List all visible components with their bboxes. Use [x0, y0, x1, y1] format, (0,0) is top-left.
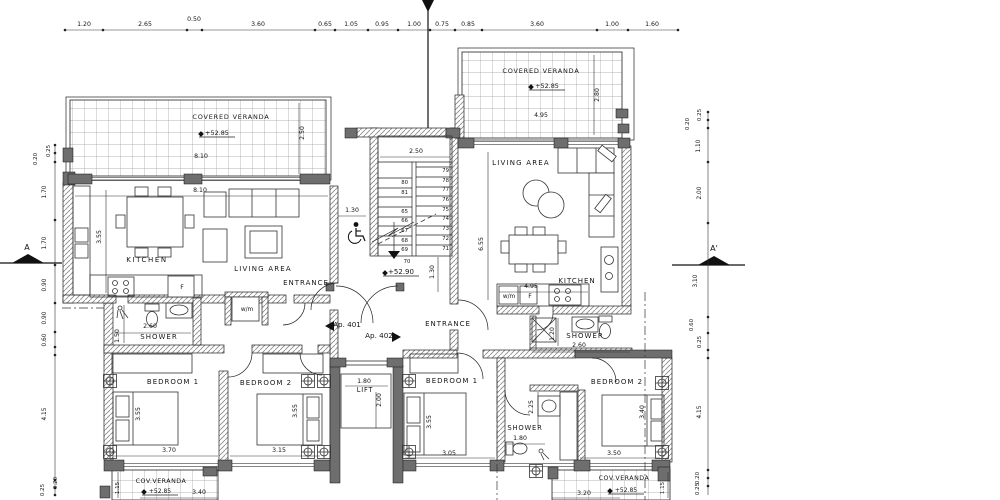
- dim-dot: [707, 127, 710, 130]
- furniture-right-apartment: [497, 145, 618, 460]
- stove: [108, 277, 134, 296]
- column-symbol: [318, 446, 331, 459]
- dim-dot: [454, 29, 457, 32]
- label-bedroom2-left: BEDROOM 2: [240, 379, 292, 387]
- dim-dot: [201, 29, 204, 32]
- stair-numbers: 80816566676869797877767574737271: [401, 168, 449, 253]
- dim-dot: [596, 29, 599, 32]
- wardrobe: [112, 354, 192, 373]
- dim-dot: [54, 264, 57, 267]
- dimension-label: 3.55: [135, 407, 142, 421]
- dimension-label: 2.50: [299, 126, 306, 140]
- door-arc-lobby-right: [361, 286, 398, 323]
- stair-step-number: 68: [401, 238, 408, 244]
- wheelchair-icon: [348, 222, 365, 243]
- label-living-area-right: LIVING AREA: [492, 159, 550, 167]
- door-arc-lobby-left: [336, 286, 373, 323]
- label-kitchen-left: KITCHEN: [126, 256, 168, 264]
- label-covered-veranda-right: COVERED VERANDA: [502, 67, 579, 75]
- label-washing-machine-right: w/m: [503, 294, 516, 300]
- stair-step-number: 81: [401, 190, 408, 196]
- dim-dot: [314, 29, 317, 32]
- dimension-label: 3.40: [192, 489, 206, 496]
- dimension-label: 3.70: [162, 447, 176, 454]
- label-covered-veranda-left: COVERED VERANDA: [192, 113, 269, 121]
- label-fridge-right: F: [528, 293, 532, 300]
- dimension-label: 1.15: [115, 481, 121, 494]
- dim-dot: [707, 316, 710, 319]
- stair-step-number: 66: [401, 218, 408, 224]
- dim-dot: [367, 29, 370, 32]
- dim-dot: [64, 29, 67, 32]
- sink: [166, 303, 192, 318]
- dimension-label: 0.90: [42, 278, 48, 291]
- dimension-label: 4.15: [697, 405, 703, 418]
- dimension-label: 1.70: [42, 236, 48, 249]
- dim-dot: [54, 346, 57, 349]
- level-mark: +52.85: [205, 129, 229, 137]
- dimension-label: 3.60: [530, 21, 544, 28]
- label-fridge-left: F: [180, 284, 184, 291]
- dim-dot: [707, 119, 710, 122]
- dimension-label: 1.05: [344, 21, 358, 28]
- dimension-label: 0.60: [42, 333, 48, 346]
- dimension-label: 0.25: [46, 144, 52, 157]
- label-bedroom2-right: BEDROOM 2: [591, 378, 643, 386]
- label-shower-right-1: SHOWER: [566, 332, 603, 340]
- label-living-area-left: LIVING AREA: [234, 265, 292, 273]
- dimension-label: 0.25: [697, 335, 703, 348]
- dim-dot: [707, 161, 710, 164]
- dim-dot: [54, 161, 57, 164]
- section-arrow-a: [12, 254, 44, 263]
- dimension-label: 3.15: [272, 447, 286, 454]
- stair-stringer: [412, 162, 416, 256]
- dimension-label: 0.95: [375, 21, 389, 28]
- window-south-left: [104, 464, 330, 467]
- stair-step-number: 72: [442, 236, 449, 242]
- label-entrance-left: ENTRANCE: [283, 279, 329, 287]
- dim-dot: [707, 357, 710, 360]
- section-marker-a-prime: A': [710, 244, 718, 253]
- stair-step-number: 80: [401, 180, 408, 186]
- dimension-label: 3.55: [426, 415, 433, 429]
- label-cov-veranda-right: COV.VERANDA: [599, 475, 650, 482]
- sink: [538, 396, 560, 416]
- dimension-label: 1.50: [114, 329, 121, 343]
- dim-dot: [707, 349, 710, 352]
- dim-dot: [54, 302, 57, 305]
- section-arrow-a-prime: [698, 256, 730, 265]
- dimension-label: 0.25: [697, 108, 703, 121]
- dim-dot: [481, 29, 484, 32]
- dim-dot: [707, 477, 710, 480]
- dim-dot: [707, 485, 710, 488]
- stair-step-number: 69: [401, 247, 408, 253]
- dimension-label: 8.10: [193, 187, 207, 194]
- floor-plan-sheet: 80816566676869797877767574737271 1.202.6…: [0, 0, 1000, 500]
- dimension-label: 2.60: [572, 342, 586, 349]
- dimension-label: 0.75: [435, 21, 449, 28]
- label-entrance-right: ENTRANCE: [425, 320, 471, 328]
- covered-veranda-top-left: [70, 100, 326, 176]
- sofa: [229, 189, 299, 217]
- dimension-label: 0.50: [187, 16, 201, 23]
- column-symbol: [403, 375, 416, 388]
- dimension-label: 1.80: [513, 435, 527, 442]
- label-kitchen-right: KITCHEN: [558, 277, 595, 285]
- dimension-label: 0.20: [685, 117, 691, 130]
- dim-dot: [334, 29, 337, 32]
- label-washing-machine-left: w/m: [241, 307, 254, 313]
- dimension-label: 3.60: [251, 21, 265, 28]
- dim-dot: [707, 469, 710, 472]
- dimension-label: 1.60: [645, 21, 659, 28]
- label-cov-veranda-left: COV.VERANDA: [136, 478, 187, 485]
- stove: [549, 285, 581, 305]
- bed: [602, 395, 664, 446]
- dining-table: [509, 235, 558, 264]
- bed: [257, 394, 322, 445]
- label-bedroom1-right: BEDROOM 1: [426, 377, 478, 385]
- kitchen-sink: [75, 228, 88, 242]
- column-symbol: [302, 446, 315, 459]
- dimension-label: 1.20: [549, 327, 556, 341]
- dim-dot: [54, 219, 57, 222]
- dimension-label: 3.20: [577, 490, 591, 497]
- dimension-label: 1.15: [660, 481, 666, 494]
- label-shower-right-2: SHOWER: [507, 424, 542, 432]
- level-mark: +52.85: [615, 487, 637, 494]
- level-mark: +52.85: [535, 82, 559, 90]
- stair-step-number: 77: [442, 187, 449, 193]
- dim-dot: [54, 494, 57, 497]
- door-arc-bedroom1-right: [457, 353, 483, 379]
- round-table: [538, 192, 564, 218]
- dimension-label: 2.00: [376, 393, 383, 407]
- lift-shaft: [330, 358, 403, 483]
- dimension-label: 8.10: [194, 153, 208, 160]
- dimension-label: 3.10: [693, 274, 699, 287]
- shower-head-icon: [539, 449, 549, 460]
- dim-dot: [677, 29, 680, 32]
- dimension-label: 1.30: [345, 207, 359, 214]
- dimension-label: 2.60: [143, 323, 157, 330]
- stair-step-number: 73: [442, 226, 449, 232]
- level-mark: +52.85: [149, 488, 171, 495]
- dim-dot: [707, 332, 710, 335]
- sink: [572, 317, 598, 332]
- dimension-label: 0.20: [695, 471, 701, 484]
- dimension-label: 1.80: [357, 378, 371, 385]
- column-symbol: [302, 375, 315, 388]
- shower-head-icon: [117, 306, 128, 319]
- stair-step-number: 76: [442, 197, 449, 203]
- lift-door: [346, 361, 387, 365]
- dim-dot: [54, 144, 57, 147]
- level-marker-icon: [382, 270, 388, 276]
- dimension-label: 3.55: [292, 404, 299, 418]
- stair-step-number: 79: [442, 168, 449, 174]
- window-north-right: [462, 142, 622, 145]
- label-apartment-401: Ap. 401: [333, 320, 361, 329]
- floor-plan-drawing: 80816566676869797877767574737271 1.202.6…: [0, 0, 1000, 500]
- label-shower-left: SHOWER: [140, 333, 177, 341]
- kitchen-sink-unit: [601, 247, 618, 292]
- dimension-label: 4.95: [534, 112, 548, 119]
- door-arc-bedroom2-left: [300, 353, 322, 375]
- level-mark: +52.90: [388, 268, 414, 276]
- dim-dot: [54, 354, 57, 357]
- stair-step-number: 70: [404, 259, 411, 265]
- dimension-label: 3.55: [96, 230, 103, 244]
- dimension-label: 0.60: [689, 318, 695, 331]
- dim-dot: [186, 29, 189, 32]
- dim-dot: [429, 29, 432, 32]
- dim-dot: [627, 29, 630, 32]
- stair-direction-arrow: [388, 251, 400, 259]
- column-symbol: [403, 446, 416, 459]
- dimension-label: 3.40: [639, 405, 646, 419]
- dimension-label: 4.15: [42, 407, 48, 420]
- dimension-label: 1.70: [42, 185, 48, 198]
- section-marker-a: A: [24, 243, 30, 252]
- stair-step-number: 67: [401, 228, 408, 234]
- label-apartment-402: Ap. 402: [365, 331, 393, 340]
- stair-step-number: 78: [442, 178, 449, 184]
- dimension-label: 4.95: [524, 283, 538, 290]
- armchair: [203, 229, 227, 262]
- dim-dot: [102, 29, 105, 32]
- dining-table: [127, 197, 183, 247]
- dimension-label: 2.00: [697, 186, 703, 199]
- dimension-label: 2.25: [528, 400, 535, 414]
- dimension-label: 1.10: [696, 139, 702, 152]
- wardrobe: [560, 392, 577, 460]
- label-bedroom1-left: BEDROOM 1: [147, 378, 199, 386]
- lift-wall-left: [330, 365, 340, 483]
- window-south-right: [398, 464, 670, 467]
- stair-step-number: 65: [401, 209, 408, 215]
- dimension-label: 0.85: [461, 21, 475, 28]
- stair-step-number: 75: [442, 207, 449, 213]
- dimension-label: 1.00: [605, 21, 619, 28]
- lift-wall-right: [393, 365, 403, 483]
- dimension-label: 6.55: [478, 237, 485, 251]
- stair-step-number: 71: [442, 246, 449, 252]
- dimension-label: 1.30: [429, 265, 436, 279]
- dimension-label: 2.65: [138, 21, 152, 28]
- dimension-label: 0.25: [695, 482, 701, 495]
- door-arc-shower2-right: [505, 390, 530, 415]
- dim-dot: [707, 111, 710, 114]
- dimension-label: 3.50: [607, 450, 621, 457]
- label-lift: LIFT: [357, 386, 374, 394]
- dimension-label: 0.90: [42, 311, 48, 324]
- dimension-label: 0.65: [318, 21, 332, 28]
- stair-step-number: 74: [442, 216, 449, 222]
- dimension-label: 1.00: [407, 21, 421, 28]
- bed: [113, 392, 178, 445]
- dimension-label: 2.80: [594, 88, 601, 102]
- dimension-label: 3.05: [442, 450, 456, 457]
- dim-dot: [54, 152, 57, 155]
- arrow-ap402: [392, 332, 401, 342]
- column-symbol: [318, 375, 331, 388]
- dim-dot: [397, 29, 400, 32]
- dim-dot: [707, 222, 710, 225]
- dimension-label: 0.20: [33, 152, 39, 165]
- dim-dot: [54, 331, 57, 334]
- door-arc-shower-left: [283, 303, 305, 325]
- dimension-label: 0.25: [40, 483, 46, 496]
- dimension-label: 0.20: [53, 476, 59, 489]
- wardrobe: [263, 354, 323, 373]
- door-arc-bedroom1-left: [228, 353, 252, 377]
- dimension-label: 1.20: [77, 21, 91, 28]
- dimension-label: 2.50: [409, 148, 423, 155]
